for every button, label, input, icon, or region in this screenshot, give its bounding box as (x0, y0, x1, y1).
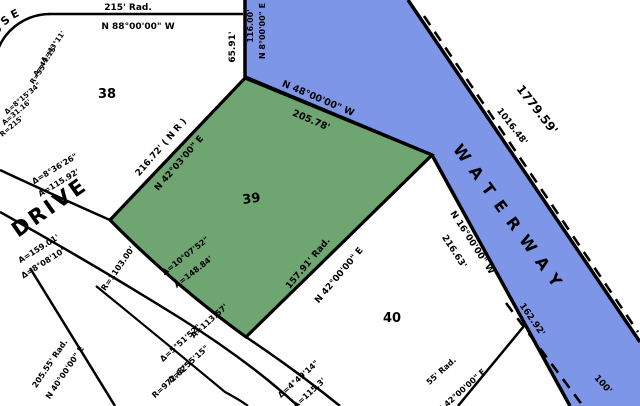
lot-number-se: 40 (383, 311, 401, 326)
radius-972-label: R=972.62' (150, 362, 190, 400)
road-north-edge-continuation (246, 337, 340, 406)
bearing-n88-label: N 88°00'00" W (101, 22, 174, 32)
plat-map-canvas: WATERWAY CLOSE DRIVE 38 39 40 215' Rad. … (0, 0, 640, 406)
bearing-n40-label: N 40°00'00" E (44, 344, 86, 400)
radius-215-label: 215' Rad. (104, 3, 152, 13)
bearing-n8-label: N 8°00'00" E (258, 3, 267, 59)
lot-number-center: 39 (241, 191, 261, 208)
distance-1779-label: 1779.59' (514, 82, 561, 137)
radius-1103-label: R=1103.00' (99, 245, 136, 293)
close-street-name: CLOSE (0, 5, 24, 56)
distance-116-label: 116.00' (246, 9, 255, 42)
radius-55-label: 55' Rad. (425, 356, 458, 387)
distance-6591-label: 65.91' (228, 31, 238, 62)
lot-se-south-boundary (458, 326, 524, 406)
plat-map: WATERWAY CLOSE DRIVE 38 39 40 215' Rad. … (0, 0, 640, 406)
lot-number-nw: 38 (98, 87, 116, 102)
